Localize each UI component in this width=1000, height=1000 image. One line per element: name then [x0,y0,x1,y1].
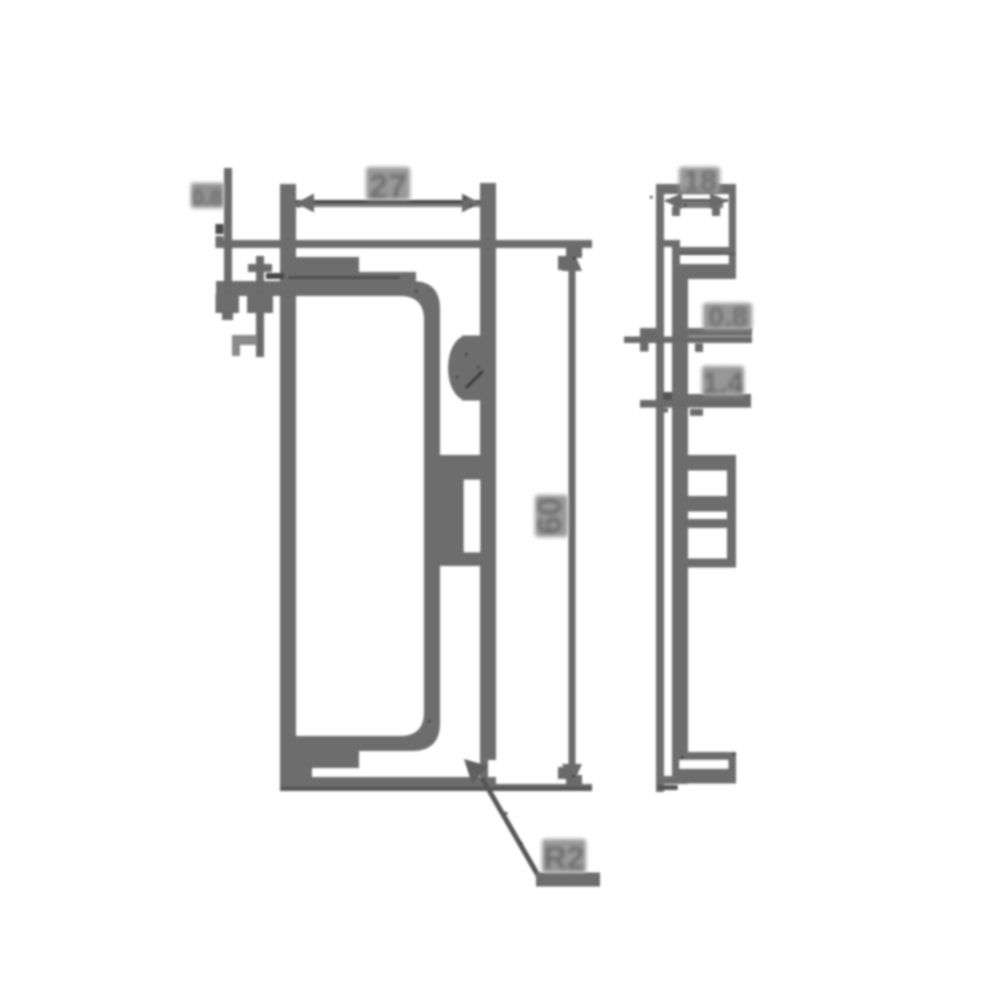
svg-text:1.4: 1.4 [702,367,744,400]
svg-text:0.8: 0.8 [709,301,748,332]
svg-text:R2: R2 [544,840,585,876]
svg-text:27: 27 [369,168,407,206]
svg-text:0.8: 0.8 [192,185,223,210]
svg-text:60: 60 [531,497,569,535]
svg-text:18: 18 [683,165,716,198]
